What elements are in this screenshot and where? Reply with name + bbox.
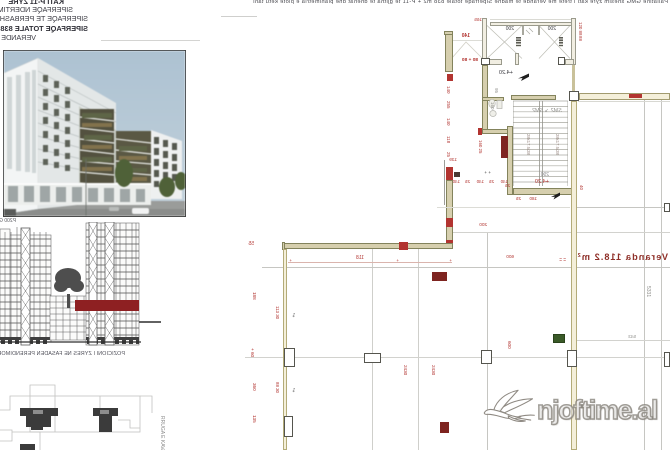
svg-text:RRUGA E KAVAJES: RRUGA E KAVAJES [159,416,165,450]
